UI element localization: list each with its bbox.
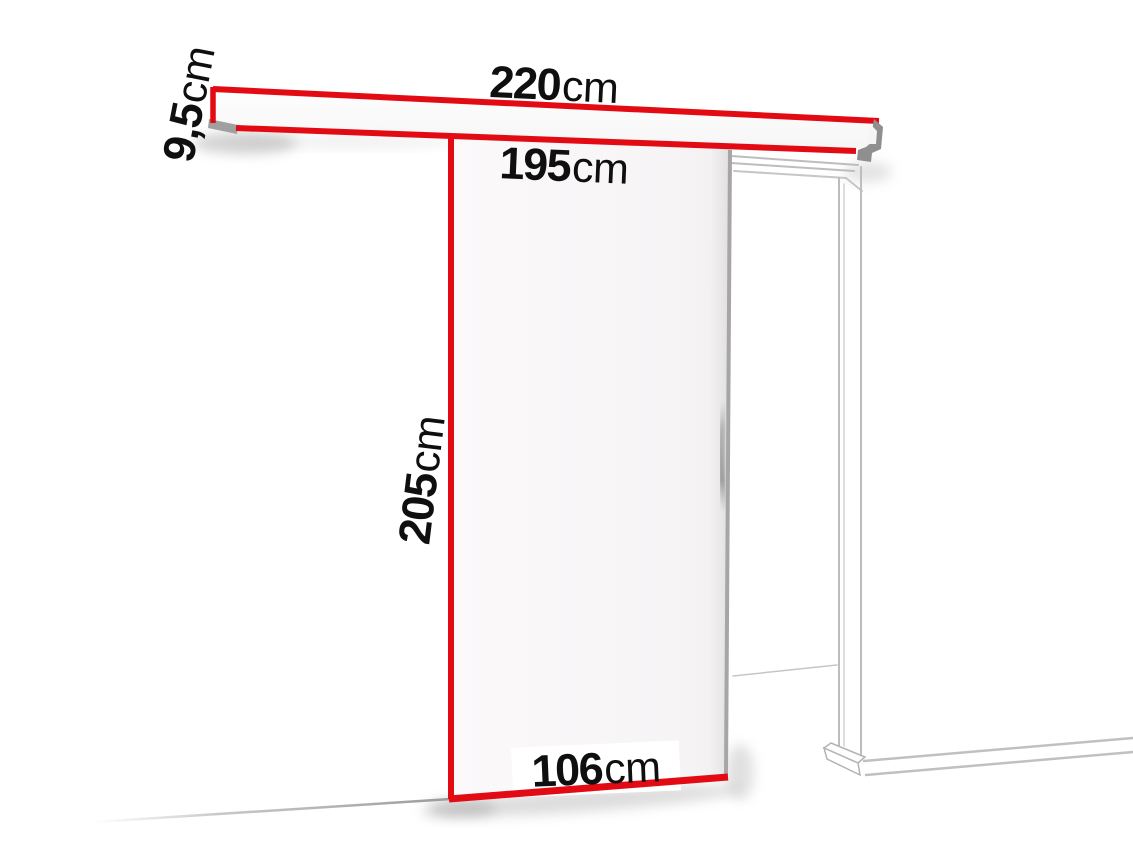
dimension-value-opening-width: 195 xyxy=(499,137,572,191)
floor-line-right-lower xyxy=(866,752,1133,775)
door-panel xyxy=(449,134,731,799)
dimension-label-rail-length: 220cm xyxy=(488,59,619,111)
door-frame xyxy=(731,156,1133,775)
dimension-unit-door-width: cm xyxy=(603,743,661,793)
dimension-unit-rail-length: cm xyxy=(561,62,620,113)
floor-line-through-opening xyxy=(733,665,837,676)
dimension-unit-door-height: cm xyxy=(400,413,455,475)
dimension-value-rail-length: 220 xyxy=(488,56,561,110)
sliding-door-dimension-diagram: 220cm 9,5cm 195cm 205cm 106cm xyxy=(0,0,1133,849)
dimension-unit-opening-width: cm xyxy=(571,143,629,193)
shadow-door-bottom-right xyxy=(726,744,754,800)
door-handle-groove-icon xyxy=(722,403,725,507)
shadow-door-bottom-left xyxy=(428,799,496,817)
dimension-value-door-height: 205 xyxy=(388,471,447,547)
dimension-value-rail-height: 9,5 xyxy=(152,99,213,166)
dimension-label-door-width: 106cm xyxy=(531,743,662,795)
shadow-rail-under xyxy=(230,137,460,147)
frame-opening-top-edge xyxy=(734,171,846,178)
floor-line-left xyxy=(95,799,451,822)
door-panel-face xyxy=(451,137,731,798)
floor-line-right-upper xyxy=(864,738,1133,761)
dimension-label-opening-width: 195cm xyxy=(499,140,630,192)
dimension-value-door-width: 106 xyxy=(530,743,603,797)
